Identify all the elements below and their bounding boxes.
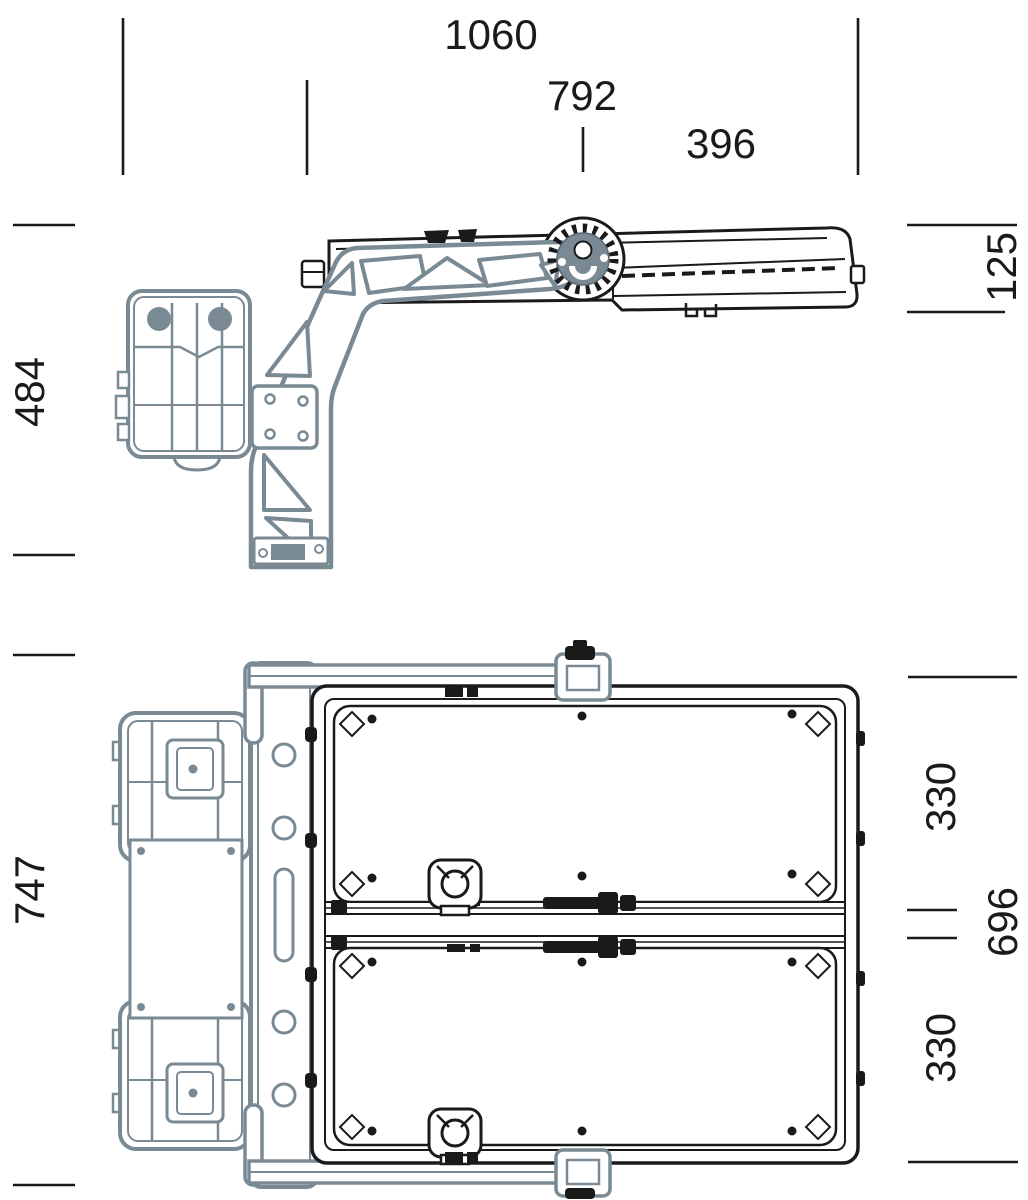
pole-clamp-plan xyxy=(113,713,250,1149)
frame-left-clip xyxy=(305,1073,317,1088)
frame-left-clip xyxy=(305,833,317,848)
clamp-bolt-left xyxy=(147,307,171,331)
dim-label-330-top: 330 xyxy=(917,762,964,832)
mounting-arm-side xyxy=(251,242,583,567)
cable-bracket-middle xyxy=(429,860,481,915)
hinge-connector-bottom xyxy=(556,1150,610,1199)
plate-hole xyxy=(273,1084,295,1106)
technical-drawing-canvas: 1060 792 396 484 125 747 330 696 330 xyxy=(0,0,1028,1200)
frame-left-clip xyxy=(305,967,317,982)
arm-cutout xyxy=(267,322,310,376)
dim-label-792: 792 xyxy=(547,72,617,119)
dim-label-396: 396 xyxy=(686,120,756,167)
plan-view xyxy=(113,640,865,1199)
dim-label-330-bottom: 330 xyxy=(917,1013,964,1083)
dim-label-1060: 1060 xyxy=(444,11,537,58)
frame-outline xyxy=(312,686,858,1163)
plate-hole xyxy=(273,744,295,766)
plate-hole xyxy=(273,817,295,839)
arm-cutout xyxy=(479,254,547,286)
frame-left-clip xyxy=(305,727,317,742)
frame-right-tab xyxy=(856,1071,865,1086)
housing-left-tab xyxy=(302,261,324,287)
frame-right-tab xyxy=(856,731,865,746)
floodlight-plan xyxy=(305,686,865,1164)
dim-label-125: 125 xyxy=(978,232,1025,302)
clamp-bolt-right xyxy=(208,307,232,331)
pole-clamp-side xyxy=(116,291,250,470)
housing-top-vent xyxy=(458,229,477,242)
dim-label-696: 696 xyxy=(979,887,1026,957)
hinge-connector-top xyxy=(556,640,610,700)
plate-slot xyxy=(275,869,293,961)
dim-label-484: 484 xyxy=(6,357,53,427)
frame-right-tab xyxy=(856,971,865,986)
hinge-knob-top xyxy=(565,646,595,660)
housing-right-tab xyxy=(851,266,864,283)
side-view xyxy=(116,218,864,567)
frame-right-tab xyxy=(856,831,865,846)
dim-label-747: 747 xyxy=(6,855,53,925)
plate-hole xyxy=(273,1011,295,1033)
clamp-back-plate xyxy=(130,840,242,1018)
housing-top-vent xyxy=(424,230,449,243)
gear-center-hole xyxy=(575,242,592,259)
hinge-knob-bottom xyxy=(565,1188,595,1199)
